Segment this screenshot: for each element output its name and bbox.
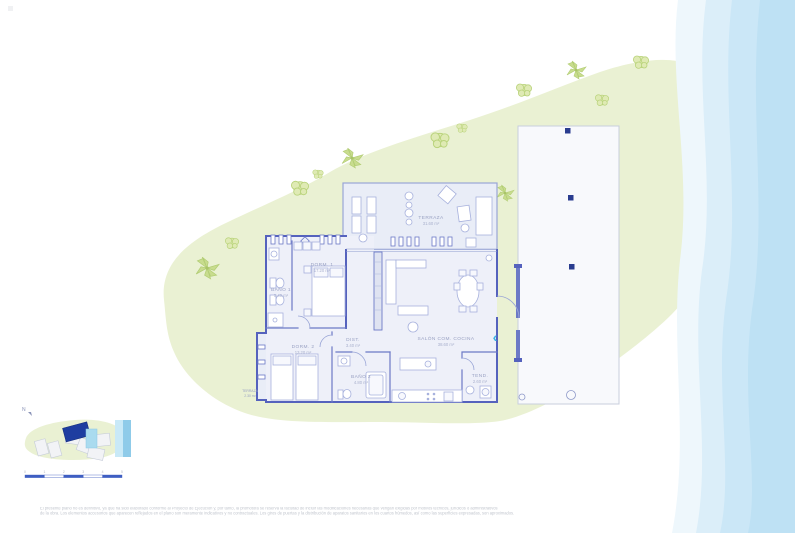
minimap-sea-light — [115, 420, 123, 457]
room-area-bano1: 5.40 m² — [274, 293, 289, 298]
scale-tick-0: 0 — [24, 470, 26, 474]
tree-icon — [595, 95, 608, 106]
tree-icon — [313, 170, 323, 179]
scale-tick-2: 2 — [63, 470, 65, 474]
tree-icon — [225, 238, 238, 249]
minimap-pool — [86, 429, 97, 448]
scale-tick-4: 4 — [102, 470, 104, 474]
disclaimer-line-2: de la obra. Los elementos accesorios que… — [40, 512, 530, 517]
site-minimap: N 0 1 2 3 4 5 — [22, 407, 131, 478]
neighbor-deck — [514, 126, 619, 404]
room-area-terraza: 31.60 m² — [423, 221, 440, 226]
room-area-tend: 2.60 m² — [473, 379, 488, 384]
sea-water — [672, 0, 800, 533]
legal-disclaimer: El presente plano no es definitivo, ya q… — [40, 507, 530, 517]
tree-icon — [457, 124, 467, 133]
north-compass: N — [22, 407, 26, 413]
column-marker — [565, 128, 571, 134]
room-area-terraza2: 2.30 m² — [244, 394, 256, 398]
tree-icon — [431, 133, 449, 148]
room-area-dorm2: 13.20 m² — [295, 350, 312, 355]
room-area-dorm1: 17.20 m² — [314, 268, 331, 273]
scale-tick-1: 1 — [43, 470, 45, 474]
room-area-dist: 3.40 m² — [346, 343, 361, 348]
palm-tree-icon — [567, 61, 586, 79]
floor-plan-page: TERRAZA 31.60 m² DORM. 1 17.20 m² BAÑO 1… — [0, 0, 800, 533]
room-label-bano1: BAÑO 1 — [271, 286, 291, 293]
plan-canvas: TERRAZA 31.60 m² DORM. 1 17.20 m² BAÑO 1… — [0, 0, 800, 533]
scale-tick-5: 5 — [121, 470, 123, 474]
room-label-bano2: BAÑO 2 — [351, 373, 371, 380]
wall-stub — [514, 264, 522, 268]
corridor-wall — [516, 330, 520, 360]
column-marker — [569, 264, 575, 270]
room-label-terraza2: TERRAZA — [242, 389, 259, 393]
corner-mark — [8, 6, 13, 11]
column-marker — [568, 195, 574, 201]
scale-bar: 0 1 2 3 4 5 — [24, 470, 123, 478]
minimap-sea-dark — [123, 420, 131, 457]
room-area-salon: 38.60 m² — [438, 342, 455, 347]
prev-plan-chevron-icon[interactable]: ‹ — [493, 329, 498, 345]
tree-icon — [516, 84, 531, 96]
north-arrow-icon — [28, 412, 32, 416]
room-label-salon: SALÓN COM. COCINA — [418, 335, 475, 342]
side-terrace-floor — [257, 333, 266, 400]
scale-tick-3: 3 — [82, 470, 84, 474]
wall-stub — [514, 358, 522, 362]
room-area-bano2: 4.80 m² — [354, 380, 369, 385]
tree-icon — [291, 181, 308, 195]
tree-icon — [633, 56, 648, 68]
partition-wall — [374, 252, 382, 330]
